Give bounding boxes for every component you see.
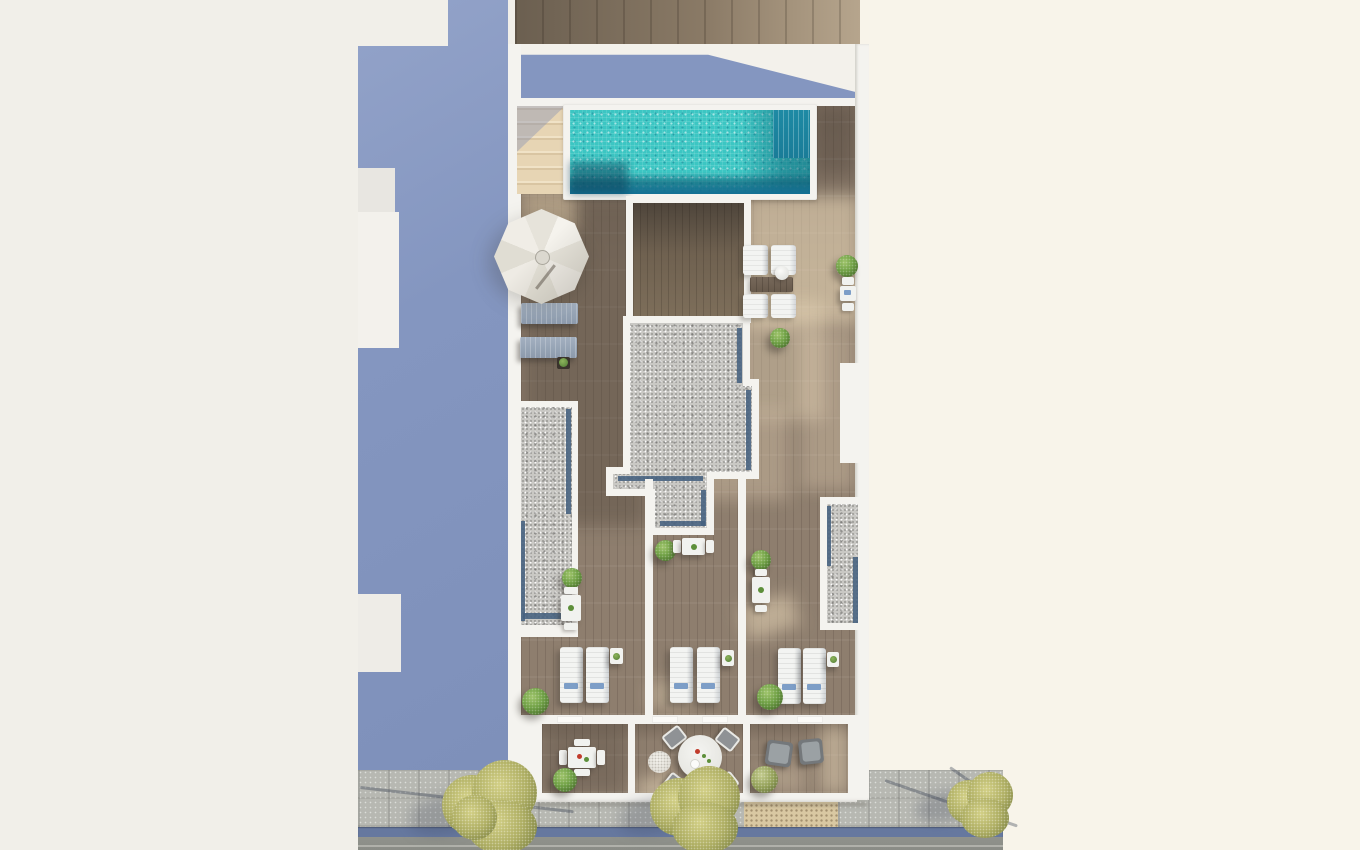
terrace-chair xyxy=(673,540,681,553)
lounger-side-table xyxy=(827,652,839,667)
terrace-chair xyxy=(755,569,767,576)
lounger-side-table xyxy=(610,648,623,664)
door-opening xyxy=(797,716,823,723)
lounge-armchair xyxy=(764,739,793,767)
drainage-channel xyxy=(827,506,831,566)
potted-bush xyxy=(522,688,549,715)
door-opening xyxy=(702,716,728,723)
potted-bush xyxy=(770,328,790,348)
towel-roll xyxy=(775,266,789,280)
top-wood-roof xyxy=(515,0,860,44)
shadow-notch xyxy=(358,594,401,672)
drainage-channel xyxy=(737,328,742,383)
sun-lounger-shaded xyxy=(521,303,578,324)
terrace-chair xyxy=(755,605,767,612)
drainage-channel xyxy=(660,521,705,526)
balcony-back-wall xyxy=(515,715,855,724)
sun-lounger-poolside xyxy=(743,245,768,275)
shadow-notch xyxy=(358,168,395,212)
lounger-table xyxy=(750,277,793,292)
balcony-divider xyxy=(743,724,750,795)
drainage-channel xyxy=(618,476,703,481)
terrace-chair xyxy=(564,623,578,630)
gravel-roof-right xyxy=(820,497,867,630)
drainage-channel xyxy=(853,557,858,623)
background-right xyxy=(860,0,1360,850)
parasol-hub xyxy=(535,250,550,265)
balcony-right-block xyxy=(848,715,867,800)
sun-lounger-poolside xyxy=(771,294,796,318)
pergola-deck xyxy=(633,203,744,316)
bistro-chair xyxy=(842,277,854,285)
drainage-channel xyxy=(746,390,751,470)
terrace-divider-wall xyxy=(645,479,653,715)
potted-bush xyxy=(562,568,582,588)
street-tree xyxy=(650,766,742,850)
door-opening xyxy=(557,716,583,723)
sun-lounger-shaded xyxy=(520,337,577,358)
upper-roof xyxy=(515,44,860,98)
building-shadow xyxy=(358,0,508,772)
sun-lounger xyxy=(803,648,826,704)
drainage-channel xyxy=(521,521,525,621)
bistro-table xyxy=(840,286,856,301)
potted-bush xyxy=(751,550,771,570)
balcony-chair xyxy=(559,750,567,765)
lounge-armchair xyxy=(798,738,824,765)
potted-plant xyxy=(751,766,778,793)
terrace-chair xyxy=(564,587,578,594)
pool-steps xyxy=(773,110,810,158)
parasol xyxy=(494,209,589,304)
balcony-divider xyxy=(628,724,635,795)
wall-platform xyxy=(840,363,862,463)
potted-plant xyxy=(557,357,570,369)
terrace-table xyxy=(752,577,770,603)
plant-foliage xyxy=(559,358,568,367)
sun-lounger xyxy=(560,647,583,703)
sun-lounger xyxy=(670,647,693,703)
potted-bush xyxy=(836,255,858,277)
street-tree xyxy=(442,760,539,850)
shadow-notch xyxy=(358,0,448,46)
balcony-chair xyxy=(597,750,605,765)
pool-corner-shadow xyxy=(570,162,628,194)
potted-bush xyxy=(553,768,577,792)
terrace-table xyxy=(561,595,581,621)
balcony-chair xyxy=(574,769,590,776)
terrace-chair xyxy=(706,540,714,553)
balcony-table xyxy=(568,747,596,768)
deck-shadow xyxy=(813,106,855,176)
sun-lounger xyxy=(697,647,720,703)
sunlit-patch xyxy=(820,724,848,793)
lounger-side-table xyxy=(722,650,734,666)
sun-lounger xyxy=(586,647,609,703)
potted-bush xyxy=(757,684,783,710)
pool-water xyxy=(570,110,810,194)
terrace-divider-wall xyxy=(738,479,746,715)
street-tree xyxy=(947,772,1015,840)
terrace-table xyxy=(682,538,705,555)
gravel-roof-center xyxy=(606,316,759,535)
shadow-notch xyxy=(358,212,399,348)
door-opening xyxy=(652,716,678,723)
bistro-chair xyxy=(842,303,854,311)
stairs-shadow xyxy=(517,106,565,194)
upper-roof-shadow xyxy=(515,44,860,98)
drainage-channel xyxy=(566,409,571,514)
pool-stairs xyxy=(517,106,565,194)
balcony-chair xyxy=(574,739,590,746)
rooftop-plan-render xyxy=(0,0,1360,850)
sun-lounger-poolside xyxy=(743,294,768,318)
